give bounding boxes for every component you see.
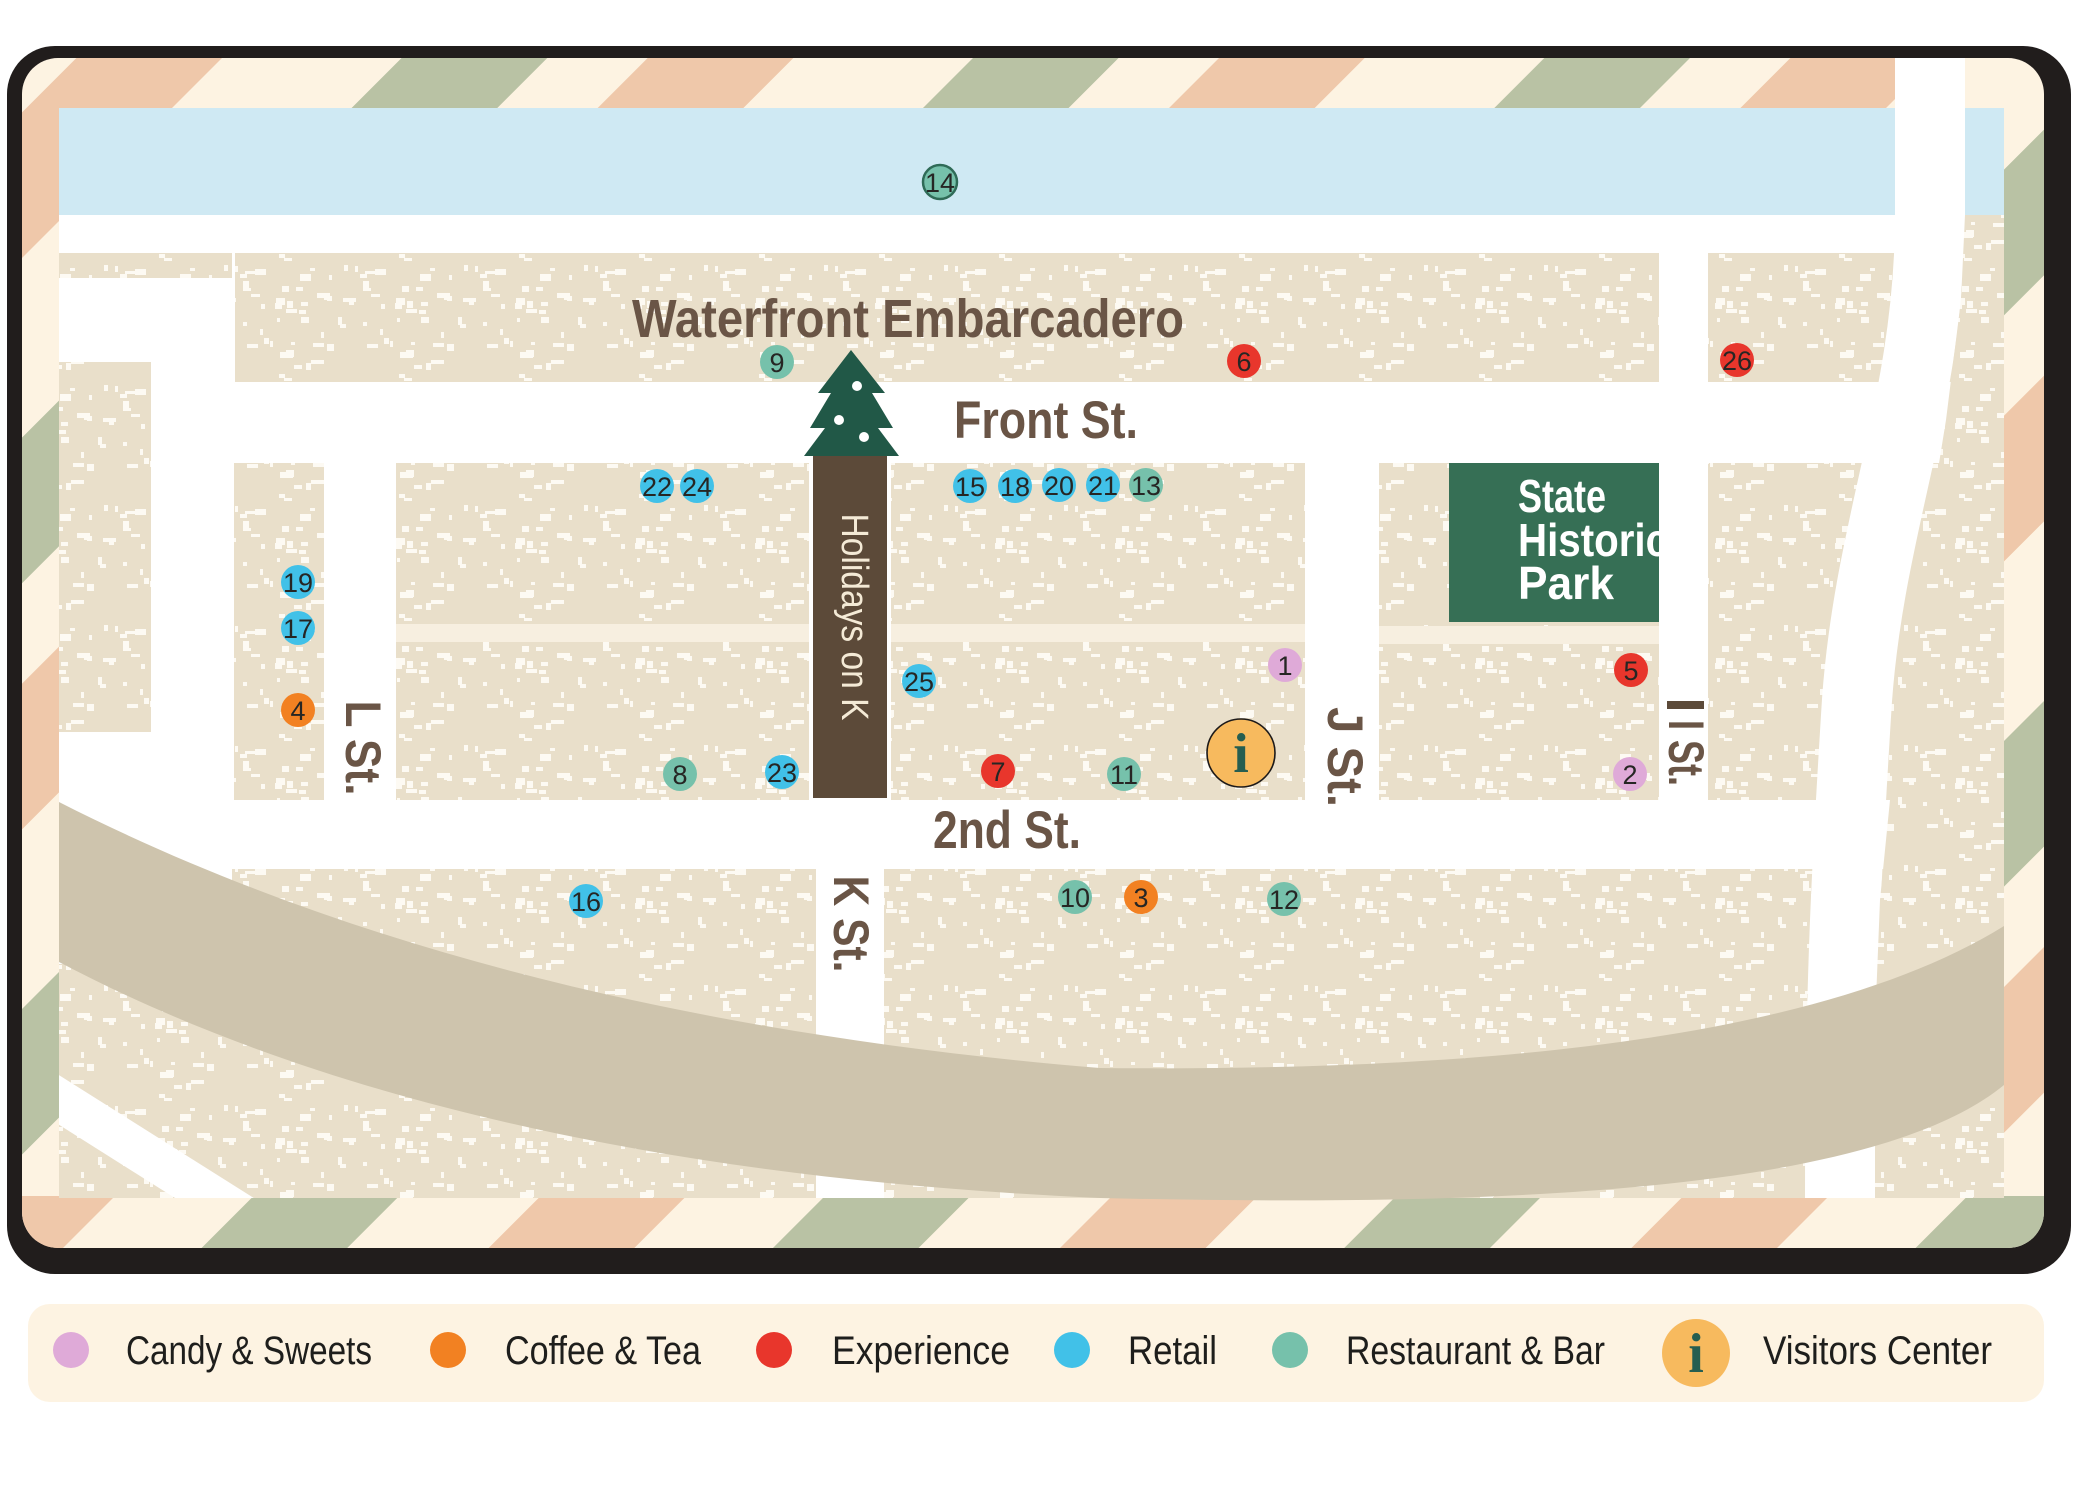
svg-text:Waterfront Embarcadero: Waterfront Embarcadero xyxy=(632,289,1184,349)
svg-text:22: 22 xyxy=(642,472,672,502)
svg-text:Park: Park xyxy=(1518,557,1614,609)
svg-text:4: 4 xyxy=(290,696,305,726)
svg-text:6: 6 xyxy=(1236,347,1251,377)
svg-text:i: i xyxy=(1688,1323,1704,1385)
svg-text:19: 19 xyxy=(283,568,313,598)
svg-text:L St.: L St. xyxy=(335,701,391,796)
svg-text:Candy & Sweets: Candy & Sweets xyxy=(126,1329,372,1373)
svg-text:16: 16 xyxy=(571,887,601,917)
svg-text:23: 23 xyxy=(767,758,797,788)
svg-text:7: 7 xyxy=(990,757,1005,787)
svg-text:Visitors Center: Visitors Center xyxy=(1763,1329,1992,1373)
svg-text:8: 8 xyxy=(672,760,687,790)
svg-text:J St.: J St. xyxy=(1317,707,1373,807)
svg-text:11: 11 xyxy=(1110,760,1138,790)
svg-text:Restaurant & Bar: Restaurant & Bar xyxy=(1346,1329,1605,1373)
svg-text:18: 18 xyxy=(1000,472,1030,502)
svg-text:K St.: K St. xyxy=(823,876,879,973)
svg-text:17: 17 xyxy=(283,614,313,644)
svg-text:12: 12 xyxy=(1269,885,1299,915)
svg-text:i: i xyxy=(1233,723,1249,785)
svg-text:Retail: Retail xyxy=(1128,1329,1217,1373)
svg-text:Holidays on K: Holidays on K xyxy=(833,514,875,721)
svg-text:21: 21 xyxy=(1088,471,1118,501)
svg-text:2nd St.: 2nd St. xyxy=(933,801,1081,860)
svg-text:9: 9 xyxy=(769,348,784,378)
svg-text:13: 13 xyxy=(1131,471,1161,501)
svg-text:I St.: I St. xyxy=(1658,720,1714,786)
svg-text:Experience: Experience xyxy=(832,1329,1010,1373)
svg-text:26: 26 xyxy=(1722,346,1752,376)
svg-text:Front St.: Front St. xyxy=(954,391,1138,450)
svg-text:1: 1 xyxy=(1277,651,1292,681)
svg-text:5: 5 xyxy=(1623,656,1638,686)
svg-text:10: 10 xyxy=(1060,883,1090,913)
svg-text:15: 15 xyxy=(955,472,985,502)
svg-text:20: 20 xyxy=(1044,471,1074,501)
svg-text:24: 24 xyxy=(682,472,712,502)
svg-text:3: 3 xyxy=(1133,883,1148,913)
svg-text:25: 25 xyxy=(904,667,934,697)
svg-text:Coffee & Tea: Coffee & Tea xyxy=(505,1329,702,1373)
svg-text:14: 14 xyxy=(925,168,955,198)
svg-text:2: 2 xyxy=(1622,760,1637,790)
